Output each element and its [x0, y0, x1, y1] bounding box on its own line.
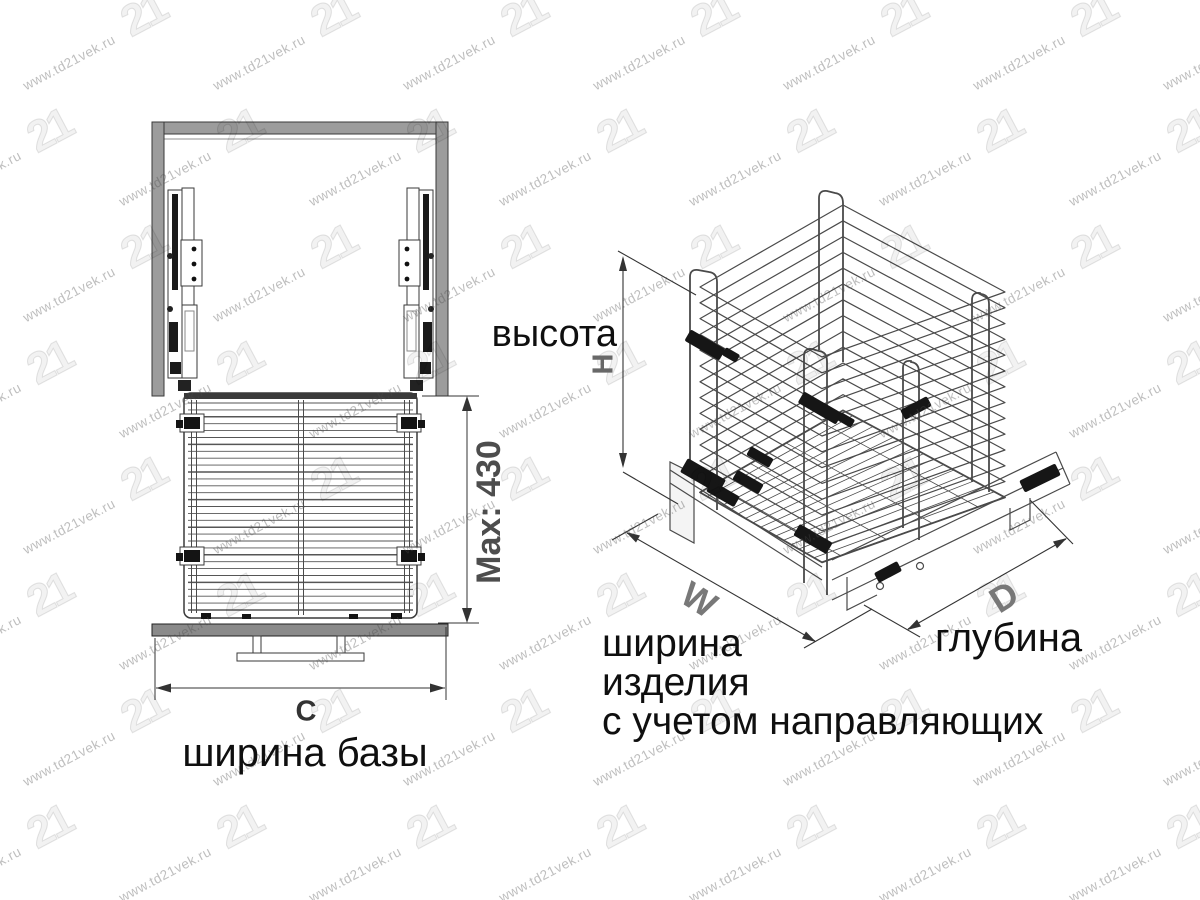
product-width-caption-line3: с учетом направляющих	[602, 702, 1043, 741]
diagram-art	[0, 0, 1200, 900]
height-caption: высота	[492, 315, 617, 353]
front-view-drawing	[152, 122, 479, 700]
base-width-caption: ширина базы	[182, 733, 427, 773]
iso-basket-wires	[700, 205, 1005, 562]
dim-c-label: C	[296, 698, 317, 727]
dim-h-label: H	[590, 354, 619, 375]
dimension-c	[155, 627, 446, 700]
product-width-caption-line2: изделия	[602, 663, 1043, 702]
max-height-label: Max: 430	[472, 440, 506, 584]
basket-front	[176, 393, 425, 619]
depth-caption: глубина	[935, 618, 1082, 658]
basket-clamp	[176, 414, 204, 432]
slide-rail-left	[167, 188, 202, 391]
diagram-canvas: www.td21vek.ru21www.td21vek.ru21www.td21…	[0, 0, 1200, 900]
base-plate	[152, 624, 448, 661]
slide-rail-right	[399, 188, 434, 391]
